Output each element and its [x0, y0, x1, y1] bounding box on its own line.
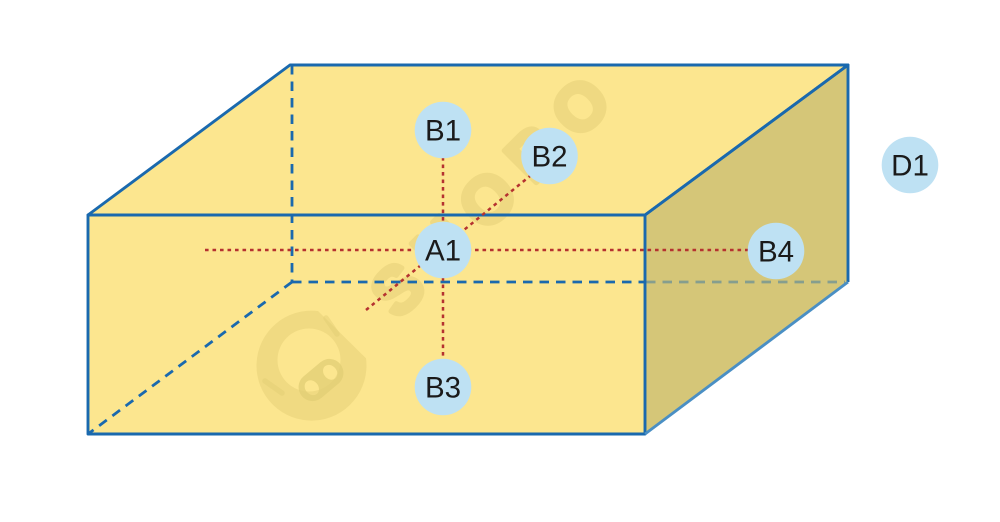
svg-text:A1: A1	[425, 235, 461, 268]
svg-text:D1: D1	[891, 150, 929, 183]
svg-text:B2: B2	[531, 141, 567, 174]
svg-text:B4: B4	[758, 236, 794, 269]
svg-text:B3: B3	[425, 372, 461, 405]
svg-text:B1: B1	[425, 115, 461, 148]
